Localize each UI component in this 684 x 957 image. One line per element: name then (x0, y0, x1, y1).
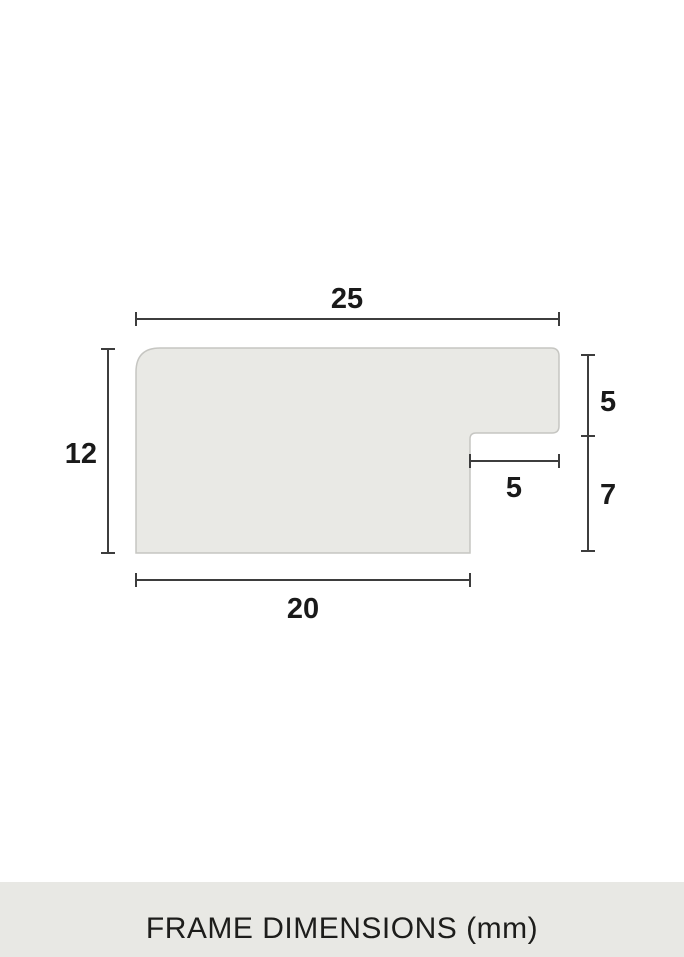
dim-label-right-upper: 5 (600, 386, 616, 418)
dim-line-notch-width (470, 454, 559, 468)
dim-label-left-height: 12 (65, 438, 97, 470)
dim-line-right-heights (581, 355, 595, 551)
caption-label: FRAME DIMENSIONS (mm) (146, 912, 538, 946)
dim-label-notch-width: 5 (506, 472, 522, 504)
dim-line-left-height (101, 349, 115, 553)
dim-label-top-width: 25 (331, 283, 363, 315)
dim-label-bottom-width: 20 (287, 593, 319, 625)
frame-dimension-diagram: 25 12 5 7 5 20 (0, 0, 684, 882)
dim-line-bottom-width (136, 573, 470, 587)
frame-profile-shape (136, 348, 559, 553)
dim-label-right-lower: 7 (600, 479, 616, 511)
caption-bar: FRAME DIMENSIONS (mm) (0, 882, 684, 957)
